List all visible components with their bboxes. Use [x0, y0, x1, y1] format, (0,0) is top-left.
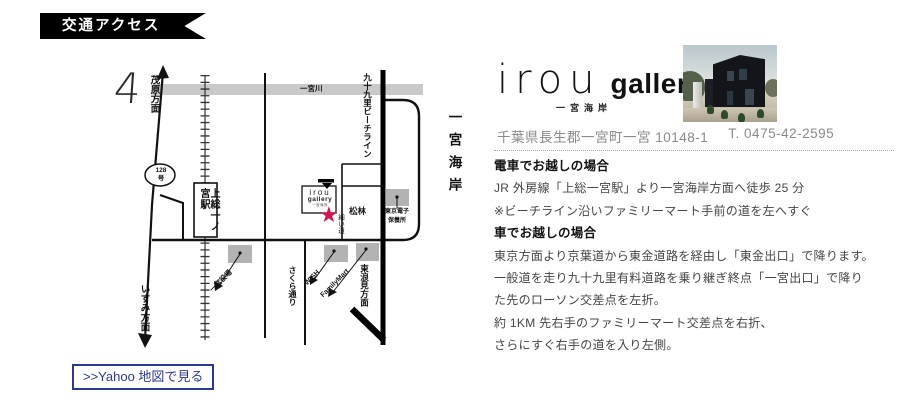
car-access-heading: 車でお越しの場合	[494, 222, 900, 244]
photo-window	[745, 89, 754, 105]
torami-direction-stroke	[352, 309, 384, 340]
car-access-line: さらにすぐ右手の道を入り左側。	[494, 334, 900, 356]
label-mobara-direction: 茂原方面	[149, 75, 159, 135]
car-access-line: 一般道を走り九十九里有料道路を乗り継ぎ終点「一宮出口」で降り	[494, 267, 900, 289]
main-road	[152, 100, 419, 240]
address-text: 千葉県長生郡一宮町一宮 10148-1	[497, 126, 708, 146]
car-access-line: 約 1KM 先右手のファミリーマート交差点を右折、	[494, 312, 900, 334]
label-ichinomiya-river: 一宮川	[300, 83, 323, 94]
access-ribbon-label: 交通アクセス	[40, 13, 206, 39]
route-128-suffix: 号	[146, 175, 176, 183]
access-ribbon: 交通アクセス	[40, 13, 206, 39]
photo-window	[727, 71, 734, 81]
brand-subtitle: 一宮海岸	[556, 101, 612, 114]
brand-logo: irou gallery	[497, 57, 704, 103]
train-access-line: ※ビーチライン沿いファミリーマート手前の道を左へすぐ	[494, 200, 900, 222]
wish-box	[324, 245, 348, 262]
photo-window	[739, 69, 747, 80]
label-tokyo-denshi-2: 保養所	[380, 217, 414, 226]
photo-plant	[721, 110, 728, 119]
train-access-heading: 電車でお越しの場合	[494, 155, 900, 177]
label-sakura-street: さくら通り	[288, 266, 296, 314]
label-route-128: 128 号	[146, 167, 176, 183]
label-ichinomiya-kaigan: 一宮海岸	[447, 110, 461, 242]
brand-name-irou: irou	[497, 57, 602, 103]
photo-building	[713, 55, 765, 107]
photo-plant	[738, 113, 745, 122]
label-tokyo-denshi-1: 東京電子	[380, 208, 414, 217]
train-access-line: JR 外房線「上総一宮駅」より一宮海岸方面へ徒歩 25 分	[494, 177, 900, 199]
car-access-line: た先のローソン交差点を左折。	[494, 289, 900, 311]
contact-row: 千葉県長生郡一宮町一宮 10148-1 T. 0475-42-2595	[497, 126, 834, 146]
photo-plant	[757, 109, 764, 118]
divider	[494, 150, 894, 151]
access-info: 電車でお越しの場合 JR 外房線「上総一宮駅」より一宮海岸方面へ徒歩 25 分 …	[494, 155, 900, 357]
photo-gate-pillar	[693, 82, 702, 108]
label-kazusa-ichinomiya-station: 上総一ノ宮駅	[198, 188, 218, 236]
photo-window	[727, 91, 733, 105]
gallery-photo	[683, 45, 777, 122]
label-pine-grove: 松林	[349, 205, 366, 217]
phone-text: T. 0475-42-2595	[728, 126, 834, 146]
label-kujukuri-beachline: 九十九里ビーチライン	[363, 73, 372, 167]
photo-trees-right	[765, 79, 777, 97]
label-tokyo-denshi: 東京電子 保養所	[380, 208, 414, 226]
photo-plant	[707, 105, 714, 114]
label-torami-direction: 東浪見方面	[360, 264, 369, 308]
gallery-location-star-icon: ★	[319, 204, 339, 226]
station-branch-road	[160, 195, 183, 241]
route-128-number: 128	[146, 167, 176, 175]
label-isumi-direction: いすみ方面	[139, 284, 149, 340]
north-compass: 4	[112, 64, 142, 113]
gallery-roof-marker	[318, 179, 334, 183]
yahoo-map-link[interactable]: >>Yahoo 地図で見る	[72, 364, 214, 390]
car-access-line: 東京方面より京葉道から東金道路を経由し「東金出口」で降ります。	[494, 245, 900, 267]
